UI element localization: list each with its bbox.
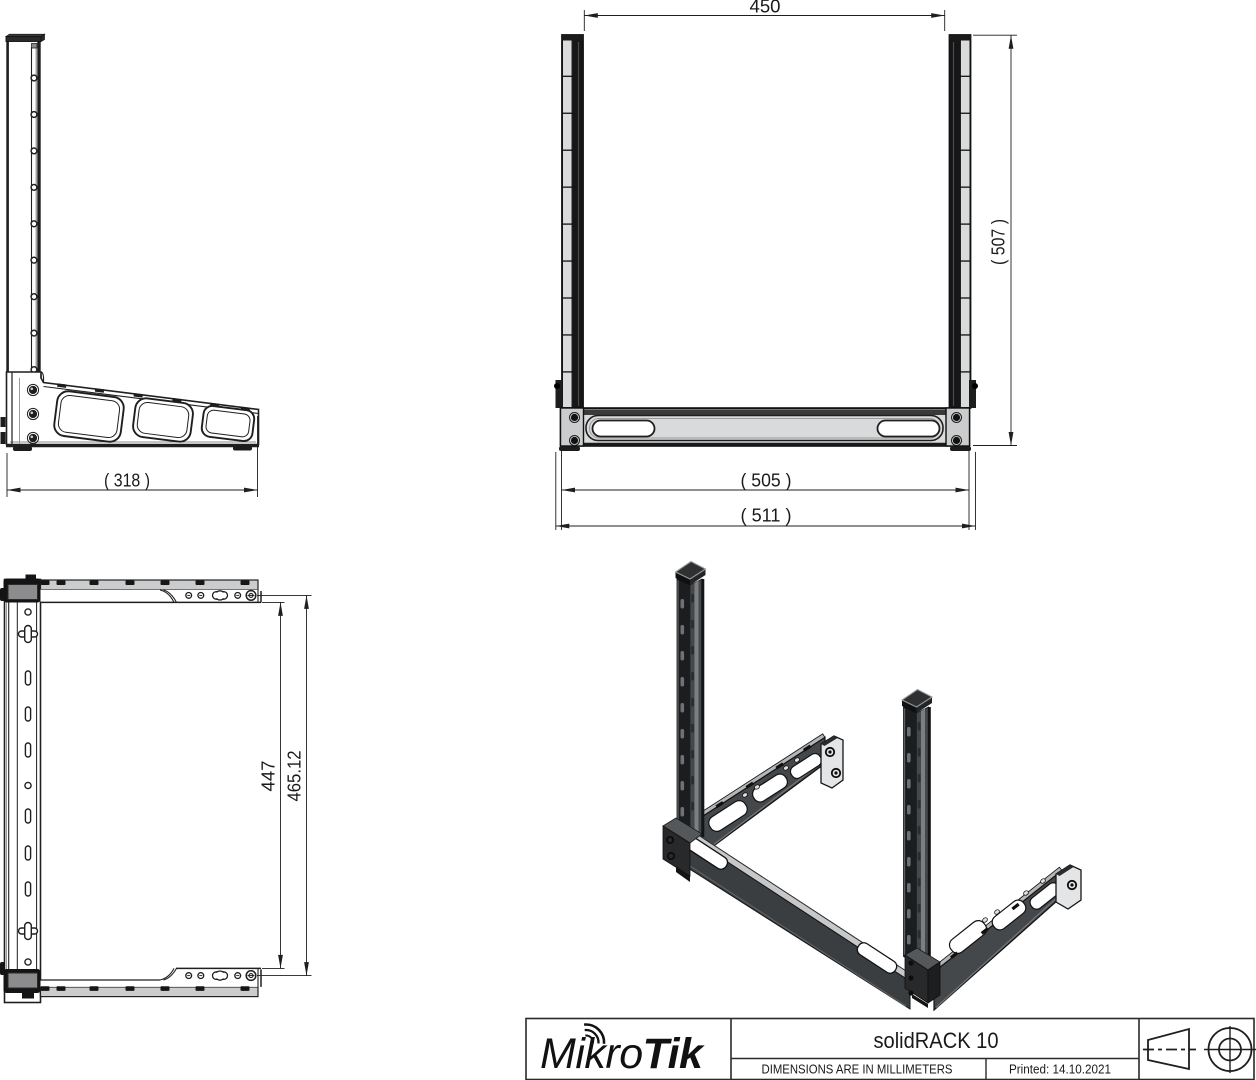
svg-text:( 511 ): ( 511 ) <box>741 506 792 526</box>
svg-text:( 507 ): ( 507 ) <box>989 219 1009 265</box>
svg-text:Printed: 14.10.2021: Printed: 14.10.2021 <box>1009 1063 1111 1077</box>
svg-text:DIMENSIONS ARE IN MILLIMETERS: DIMENSIONS ARE IN MILLIMETERS <box>762 1062 953 1077</box>
svg-text:MikroTik: MikroTik <box>540 1030 705 1078</box>
svg-text:( 318 ): ( 318 ) <box>104 471 150 491</box>
svg-text:447: 447 <box>259 761 279 792</box>
svg-text:( 505 ): ( 505 ) <box>741 471 792 491</box>
svg-text:450: 450 <box>750 0 781 17</box>
svg-text:465.12: 465.12 <box>285 751 305 802</box>
svg-text:solidRACK 10: solidRACK 10 <box>874 1028 999 1053</box>
